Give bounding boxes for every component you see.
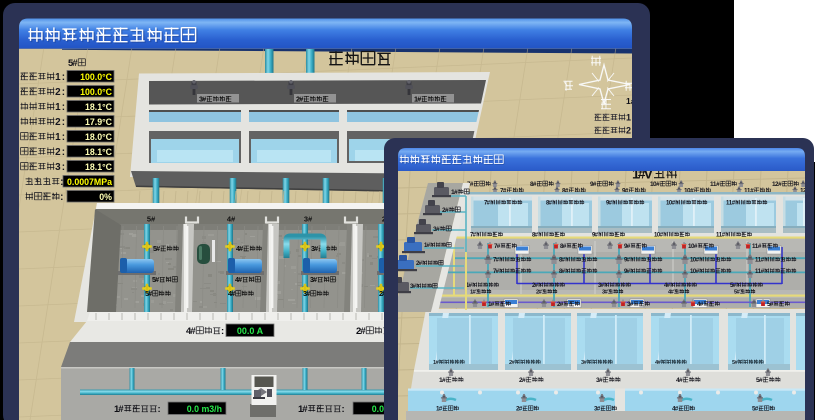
svg-text:9#: 9# bbox=[624, 243, 631, 250]
svg-text:7#: 7# bbox=[470, 233, 477, 239]
svg-text:7#: 7# bbox=[494, 243, 501, 250]
svg-text:10#: 10# bbox=[690, 269, 700, 275]
svg-text:4#: 4# bbox=[664, 283, 671, 289]
svg-text:0%: 0% bbox=[99, 192, 112, 202]
svg-text:4#: 4# bbox=[655, 360, 662, 366]
svg-text:4#: 4# bbox=[236, 245, 243, 253]
svg-text:5#: 5# bbox=[153, 245, 160, 253]
svg-text:2:: 2: bbox=[55, 87, 65, 98]
svg-text:7#: 7# bbox=[484, 201, 491, 207]
svg-text:11#: 11# bbox=[752, 243, 762, 250]
svg-text:3#: 3# bbox=[581, 360, 588, 366]
svg-text:5#: 5# bbox=[730, 283, 737, 289]
svg-text:8#: 8# bbox=[546, 201, 553, 207]
svg-text:3#: 3# bbox=[310, 276, 317, 284]
svg-text:2#: 2# bbox=[519, 377, 526, 384]
svg-text:8#: 8# bbox=[530, 181, 537, 188]
svg-text:3#: 3# bbox=[433, 226, 440, 233]
svg-text:3#: 3# bbox=[303, 290, 310, 298]
svg-text:18.1°C: 18.1°C bbox=[85, 162, 113, 172]
svg-text::: : bbox=[221, 326, 224, 337]
svg-text:9#: 9# bbox=[592, 233, 599, 239]
svg-text:4#: 4# bbox=[186, 326, 196, 337]
svg-text:11#: 11# bbox=[726, 201, 736, 207]
svg-text:2:: 2: bbox=[55, 117, 65, 128]
svg-text:0.0007MPa: 0.0007MPa bbox=[67, 177, 112, 187]
svg-text:5#: 5# bbox=[147, 215, 156, 224]
svg-text:0.0 m3/h: 0.0 m3/h bbox=[187, 404, 222, 414]
svg-text:3:: 3: bbox=[55, 162, 65, 173]
svg-text:4#: 4# bbox=[697, 301, 704, 308]
svg-text:2#: 2# bbox=[536, 290, 543, 296]
svg-text:5#: 5# bbox=[732, 360, 739, 366]
svg-text:9#: 9# bbox=[624, 258, 631, 264]
svg-text:17.9°C: 17.9°C bbox=[85, 117, 113, 127]
svg-text:1#: 1# bbox=[433, 360, 440, 366]
svg-text:4#: 4# bbox=[676, 377, 683, 384]
svg-text:5#: 5# bbox=[756, 377, 763, 384]
svg-text:18.1°C: 18.1°C bbox=[85, 147, 113, 157]
svg-text:1#: 1# bbox=[424, 243, 431, 249]
svg-text:1:: 1: bbox=[55, 102, 65, 113]
svg-text:10#: 10# bbox=[654, 233, 664, 239]
svg-text:2#: 2# bbox=[532, 283, 539, 289]
svg-text:7#: 7# bbox=[493, 258, 500, 264]
svg-text:100.0°C: 100.0°C bbox=[80, 87, 113, 97]
svg-text:18.1°C: 18.1°C bbox=[85, 102, 113, 112]
svg-text:00.0 A: 00.0 A bbox=[237, 326, 264, 336]
svg-text:1#: 1# bbox=[439, 377, 446, 384]
svg-text:1#: 1# bbox=[451, 189, 458, 196]
svg-text:3#: 3# bbox=[410, 284, 417, 290]
svg-text::: : bbox=[158, 404, 161, 415]
svg-text:3#: 3# bbox=[596, 377, 603, 384]
svg-text:1#: 1# bbox=[298, 404, 308, 415]
svg-text:11#: 11# bbox=[716, 233, 726, 239]
svg-text:10#: 10# bbox=[688, 243, 698, 250]
svg-text:4#: 4# bbox=[668, 290, 675, 296]
svg-text:3#: 3# bbox=[602, 290, 609, 296]
svg-text:2#: 2# bbox=[416, 261, 423, 267]
svg-text:4#: 4# bbox=[228, 290, 235, 298]
svg-text:8#: 8# bbox=[560, 243, 567, 250]
svg-text:5#: 5# bbox=[145, 290, 152, 298]
svg-text:100.0°C: 100.0°C bbox=[80, 72, 113, 82]
svg-text:9#: 9# bbox=[624, 269, 631, 275]
svg-text:2#: 2# bbox=[356, 326, 366, 337]
svg-text:1#: 1# bbox=[470, 290, 477, 296]
svg-text:11#: 11# bbox=[710, 181, 720, 188]
svg-text:3#: 3# bbox=[304, 215, 313, 224]
svg-text:2#: 2# bbox=[296, 95, 303, 104]
svg-text:11#: 11# bbox=[755, 269, 765, 275]
svg-text:3#: 3# bbox=[199, 95, 206, 104]
svg-text:1#: 1# bbox=[114, 404, 124, 415]
svg-text:3#: 3# bbox=[627, 301, 634, 308]
svg-text:2#: 2# bbox=[557, 301, 564, 308]
svg-text:1:: 1: bbox=[55, 132, 65, 143]
svg-text:8#: 8# bbox=[559, 269, 566, 275]
svg-text:12#: 12# bbox=[772, 181, 782, 188]
svg-text:9#: 9# bbox=[590, 181, 597, 188]
svg-text:8#: 8# bbox=[559, 258, 566, 264]
svg-text:9#: 9# bbox=[606, 201, 613, 207]
svg-text:1#: 1# bbox=[414, 95, 421, 104]
svg-text:3#: 3# bbox=[311, 245, 318, 253]
svg-text:2#: 2# bbox=[509, 360, 516, 366]
svg-text:2:: 2: bbox=[55, 147, 65, 158]
svg-text:10#: 10# bbox=[666, 201, 676, 207]
svg-text:11#: 11# bbox=[755, 258, 765, 264]
svg-text:1#: 1# bbox=[488, 301, 495, 308]
svg-text::: : bbox=[342, 404, 345, 415]
svg-text:18.0°C: 18.0°C bbox=[85, 132, 113, 142]
svg-text:7#: 7# bbox=[493, 269, 500, 275]
svg-text:5#: 5# bbox=[68, 58, 78, 69]
svg-text:5#: 5# bbox=[734, 290, 741, 296]
svg-text:8#: 8# bbox=[532, 233, 539, 239]
svg-text:2#: 2# bbox=[442, 207, 449, 214]
svg-text:1:: 1: bbox=[55, 72, 65, 83]
svg-text:5#: 5# bbox=[767, 301, 774, 308]
svg-text:10#: 10# bbox=[650, 181, 660, 188]
svg-text:5#: 5# bbox=[152, 276, 159, 284]
svg-text::: : bbox=[60, 192, 63, 203]
svg-text:4#: 4# bbox=[227, 215, 236, 224]
svg-text:3#: 3# bbox=[598, 283, 605, 289]
svg-text:10#: 10# bbox=[690, 258, 700, 264]
svg-text:4#: 4# bbox=[235, 276, 242, 284]
